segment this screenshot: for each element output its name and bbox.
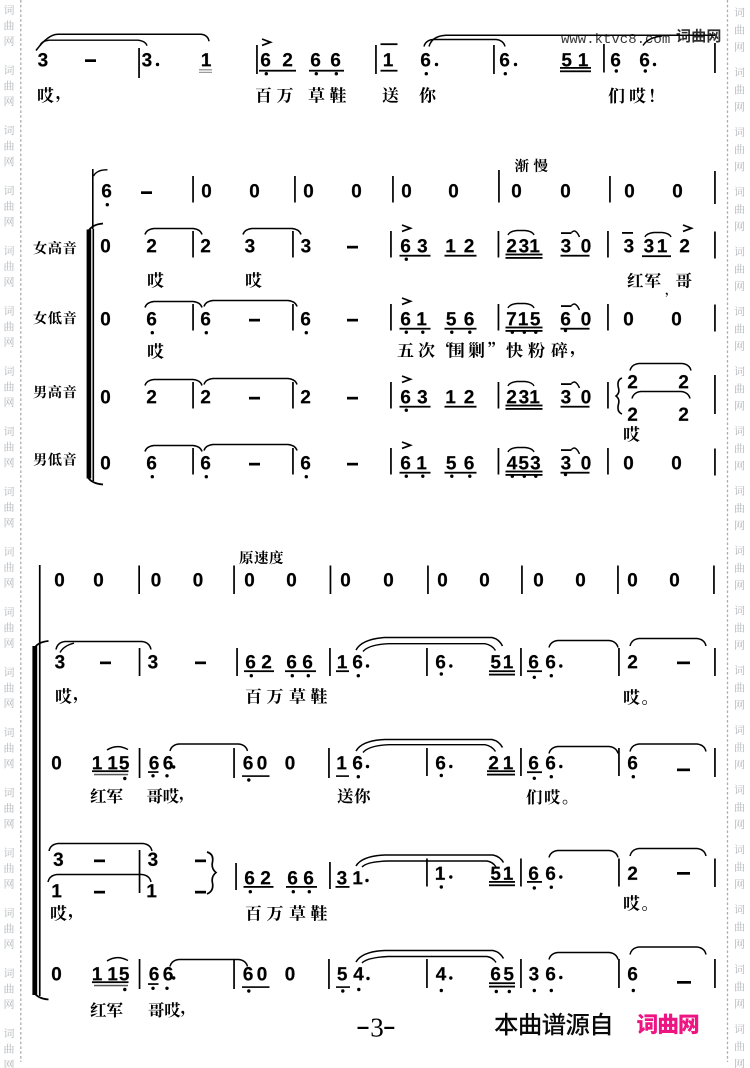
svg-text:3: 3 [370,1012,384,1042]
svg-text:www.ktvc8.com: www.ktvc8.com [561,32,670,48]
